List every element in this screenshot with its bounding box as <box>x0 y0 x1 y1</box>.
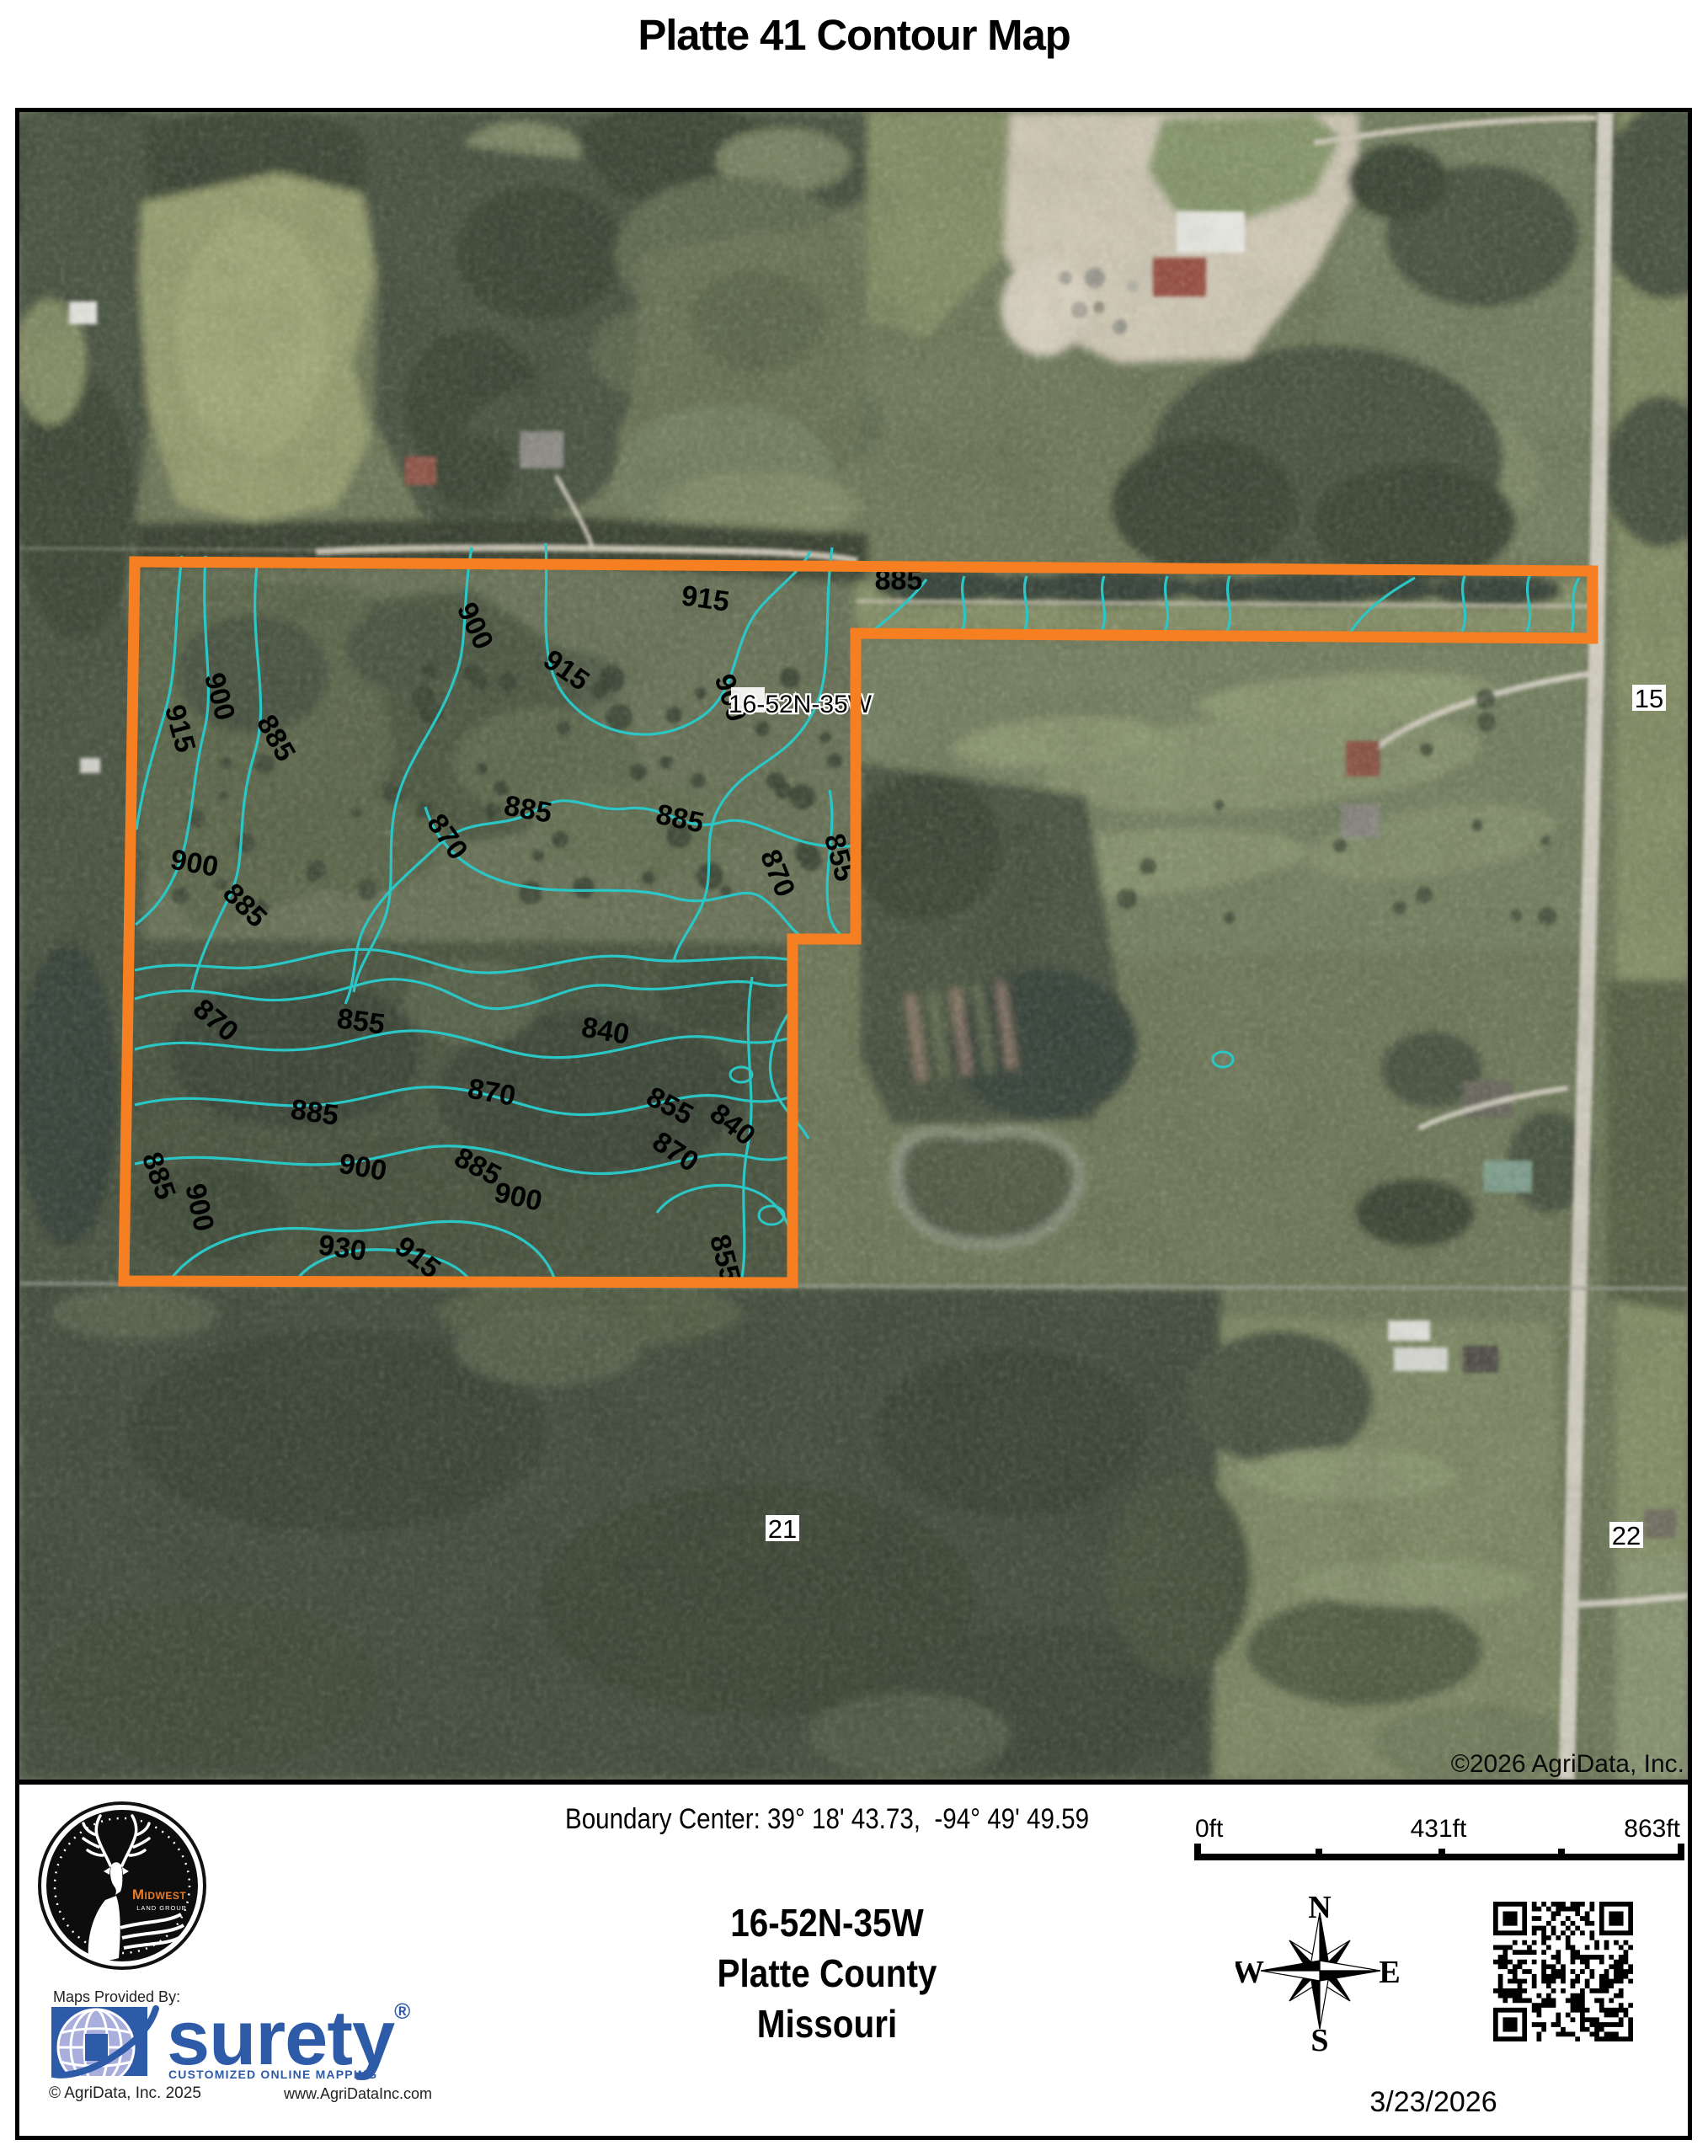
svg-text:915: 915 <box>680 579 731 618</box>
svg-text:885: 885 <box>289 1093 340 1132</box>
svg-text:LAND GROUP: LAND GROUP <box>136 1904 187 1912</box>
svg-text:©2026 AgriData, Inc.: ©2026 AgriData, Inc. <box>1451 1750 1684 1778</box>
svg-text:930: 930 <box>317 1229 368 1267</box>
svg-text:22: 22 <box>1612 1521 1641 1550</box>
svg-text:15: 15 <box>1635 684 1663 713</box>
svg-text:Midwest: Midwest <box>132 1886 186 1903</box>
svg-text:W: W <box>1236 1955 1264 1990</box>
svg-text:E: E <box>1379 1955 1400 1990</box>
svg-text:S: S <box>1310 2023 1328 2057</box>
svg-text:21: 21 <box>768 1514 797 1544</box>
svg-text:N: N <box>1308 1890 1331 1925</box>
svg-text:855: 855 <box>335 1002 387 1041</box>
